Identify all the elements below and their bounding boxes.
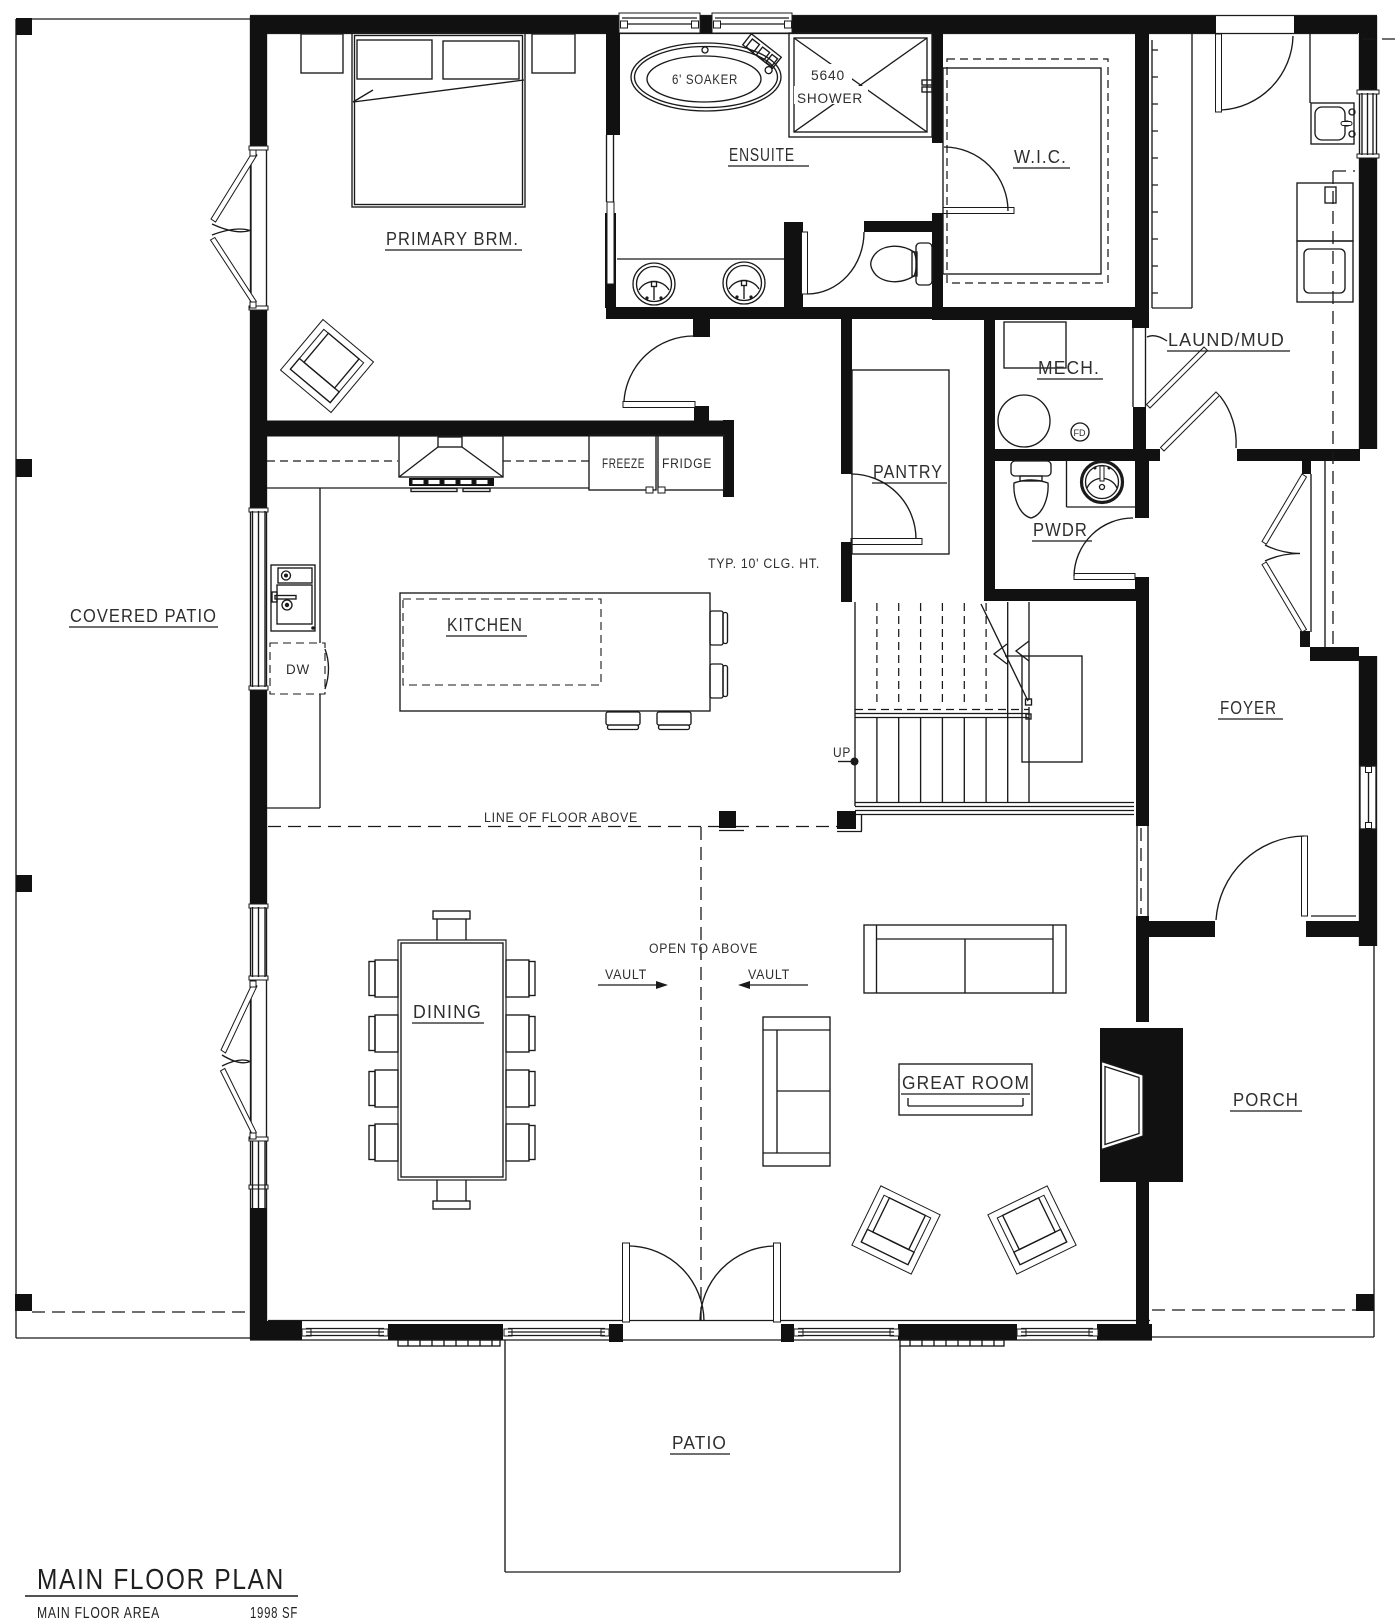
svg-text:PRIMARY BRM.: PRIMARY BRM.: [386, 228, 519, 249]
svg-text:FREEZE: FREEZE: [602, 456, 645, 471]
svg-text:GREAT ROOM: GREAT ROOM: [902, 1072, 1030, 1093]
svg-text:PATIO: PATIO: [672, 1432, 727, 1453]
svg-text:6' SOAKER: 6' SOAKER: [672, 72, 738, 87]
svg-text:PORCH: PORCH: [1233, 1089, 1299, 1110]
svg-text:COVERED PATIO: COVERED PATIO: [70, 605, 217, 626]
svg-text:FOYER: FOYER: [1220, 697, 1277, 718]
svg-text:KITCHEN: KITCHEN: [447, 614, 523, 635]
svg-text:5640: 5640: [811, 68, 845, 83]
svg-text:VAULT: VAULT: [605, 967, 647, 982]
svg-text:FD: FD: [1074, 428, 1086, 438]
svg-text:DW: DW: [286, 662, 310, 677]
svg-text:LAUND/MUD: LAUND/MUD: [1168, 329, 1285, 350]
svg-text:UP: UP: [833, 745, 851, 760]
svg-text:W.I.C.: W.I.C.: [1014, 146, 1067, 167]
svg-text:TYP. 10' CLG. HT.: TYP. 10' CLG. HT.: [708, 556, 820, 571]
svg-text:SHOWER: SHOWER: [797, 91, 863, 106]
svg-text:DINING: DINING: [413, 1001, 482, 1022]
svg-text:1998 SF: 1998 SF: [250, 1605, 298, 1621]
svg-text:VAULT: VAULT: [748, 967, 790, 982]
svg-text:FRIDGE: FRIDGE: [662, 456, 712, 471]
svg-text:PWDR: PWDR: [1033, 519, 1088, 540]
svg-text:LINE OF FLOOR ABOVE: LINE OF FLOOR ABOVE: [484, 810, 638, 825]
svg-text:OPEN TO ABOVE: OPEN TO ABOVE: [649, 941, 758, 956]
svg-text:MAIN FLOOR AREA: MAIN FLOOR AREA: [37, 1605, 160, 1621]
svg-text:MAIN FLOOR PLAN: MAIN FLOOR PLAN: [37, 1564, 285, 1596]
svg-text:ENSUITE: ENSUITE: [729, 144, 795, 165]
svg-text:PANTRY: PANTRY: [873, 461, 943, 482]
svg-text:MECH.: MECH.: [1038, 357, 1100, 378]
